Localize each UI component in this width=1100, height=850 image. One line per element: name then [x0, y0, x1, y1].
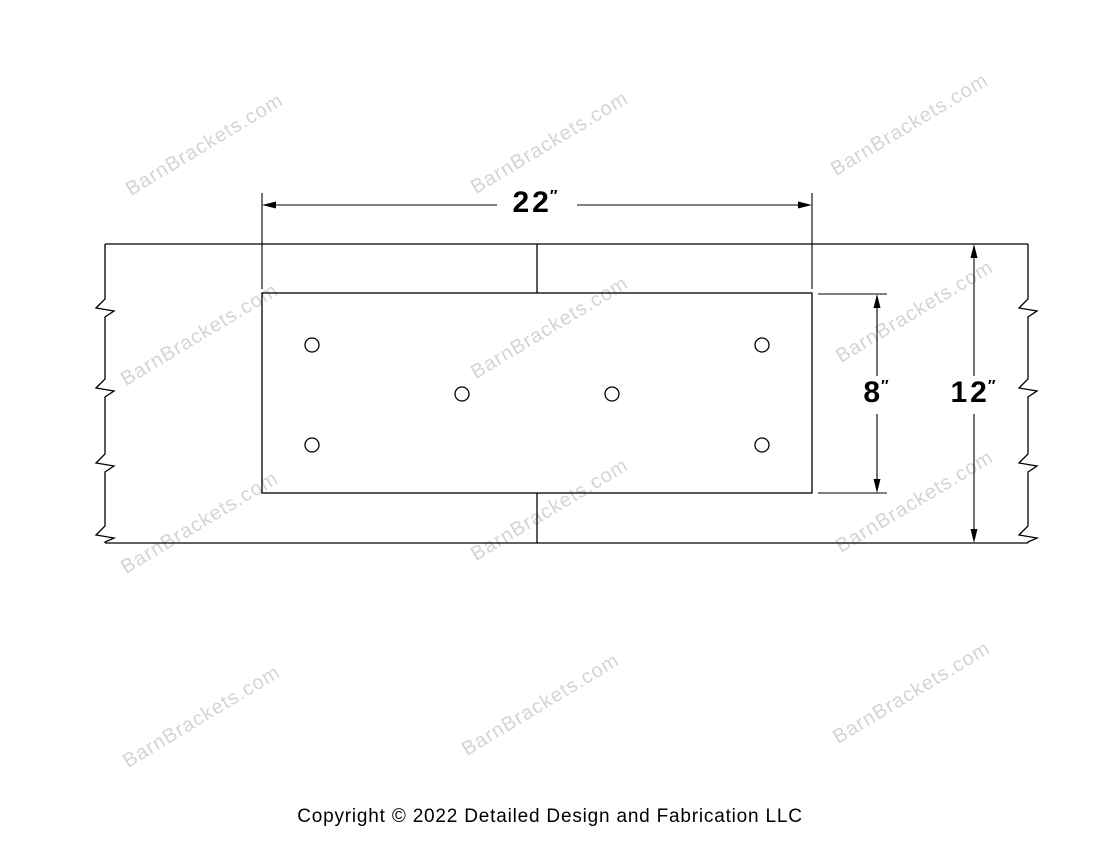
dim-arrow-up — [971, 244, 978, 258]
inch-mark: ″ — [881, 378, 889, 395]
dim-plate-width-label: 22″ — [486, 188, 586, 218]
inch-mark: ″ — [988, 378, 996, 395]
plate-outline — [262, 293, 812, 493]
bolt-hole — [305, 438, 319, 452]
blueprint-canvas: BarnBrackets.com BarnBrackets.com BarnBr… — [0, 0, 1100, 850]
dim-plate-height-label: 8″ — [827, 378, 927, 408]
bolt-hole — [755, 438, 769, 452]
technical-drawing — [0, 0, 1100, 850]
dim-arrow-up — [874, 294, 881, 308]
bolt-hole — [305, 338, 319, 352]
drawing-lines — [96, 193, 1037, 543]
dim-arrow-down — [874, 479, 881, 493]
dim-arrow-right — [798, 202, 812, 209]
bolt-hole — [605, 387, 619, 401]
dim-arrow-left — [262, 202, 276, 209]
dim-beam-height-label: 12″ — [924, 378, 1024, 408]
beam-left-break-line — [96, 244, 114, 543]
bolt-hole — [455, 387, 469, 401]
dim-arrow-down — [971, 529, 978, 543]
bolt-hole — [755, 338, 769, 352]
dim-value: 12 — [950, 376, 989, 409]
copyright-text: Copyright © 2022 Detailed Design and Fab… — [0, 806, 1100, 828]
inch-mark: ″ — [550, 188, 558, 205]
dim-value: 22 — [512, 186, 551, 219]
